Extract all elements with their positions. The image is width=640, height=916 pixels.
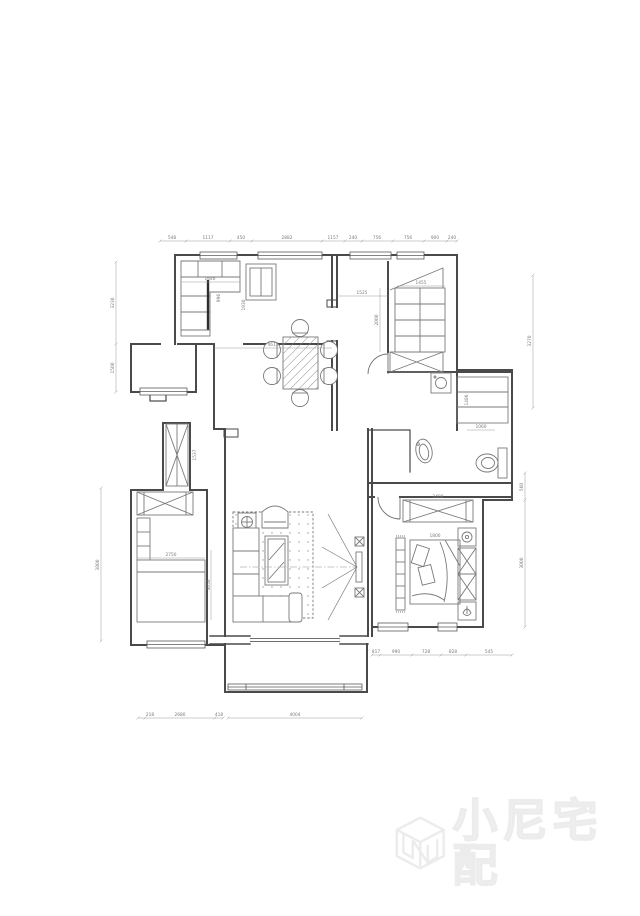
dim-label: 828 [449,649,457,655]
brand-watermark: 小尼宅配 [394,798,640,888]
dim-label: 2680 [175,712,186,718]
dim-label: 1800 [430,533,441,539]
kitchen-counter-icon [181,261,240,330]
wall-right-outer [457,255,512,627]
dim-label: 817 [372,649,380,655]
window-master-2 [438,623,457,631]
dim-label: 3000 [519,557,525,568]
window-kitchen-1 [200,252,237,259]
window-bedroom-left [147,641,205,648]
dim-label: 2400 [433,494,444,500]
rug-icon [396,536,405,612]
wardrobe-icon [137,492,193,515]
brand-watermark-text: 小尼宅配 [453,798,640,888]
floorplan-drawing: 548 1117 450 2882 1157 240 756 756 900 2… [0,0,640,916]
dim-label: 3230 [110,297,116,308]
bed-icon [410,540,460,604]
sink-icon [414,438,435,465]
wardrobe-icon [403,500,473,522]
wall-balcony-piers [210,636,368,644]
dim-label: 560 [519,483,525,491]
chair-icon [264,368,281,385]
dim-label: 2750 [166,552,177,558]
dim-label: 3270 [527,335,533,346]
bathroom-area [414,373,508,478]
dim-label: 1930 [241,299,247,310]
wall-small-room [131,344,196,392]
dim-label: 3800 [95,559,101,570]
dim-label: 2000 [374,314,380,325]
door-arc-master [378,497,400,519]
wardrobe-icon [390,352,443,372]
window-bedroom2 [397,252,424,259]
chair-icon [292,320,309,337]
cabinet-open-door [390,268,443,290]
dim-label: 240 [448,235,456,241]
kitchen-cabinet-end [181,330,210,336]
hall-closet-icon [166,424,188,486]
window-dining [350,252,391,259]
window-small-room [140,388,187,395]
dim-label: 900 [431,235,439,241]
dim-label: 1117 [203,235,214,241]
dim-label: 218 [146,712,154,718]
dim-label: 1157 [328,235,339,241]
wall-hall-notch [224,429,238,437]
dim-label: 756 [404,235,412,241]
floorplan-page: { "watermark": { "brand_text": "小尼宅配", "… [0,0,640,916]
chair-icon [292,390,309,407]
cube-n-logo-icon [394,813,447,873]
nightstand-lamp-icon [458,528,476,546]
chair-icon [321,342,338,359]
dim-label: 1537 [192,449,198,460]
wall-hall-west [214,344,225,636]
armchair-icon [262,506,288,528]
dim-label: 240 [349,235,357,241]
master-bedroom [396,500,476,620]
kitchen-area [181,261,276,336]
dim-label: 1500 [110,362,116,373]
door-arc-bedroom2 [368,354,388,374]
living-room [233,506,364,622]
balcony-door-track [250,639,340,642]
dim-label: 4611 [268,342,279,348]
dim-label: 2882 [282,235,293,241]
dim-label: 548 [168,235,176,241]
toilet-icon [476,448,507,478]
dim-label: 756 [373,235,381,241]
window-balcony [228,684,362,690]
wall-living-east [368,429,372,636]
chaise-icon [458,548,476,600]
fridge-icon [246,264,276,300]
nightstand-plant-icon [458,602,476,620]
washing-machine-icon [431,373,451,393]
dim-label: 728 [422,649,430,655]
bookcase-icon [395,288,445,352]
dim-label: 990 [392,649,400,655]
chair-icon [321,368,338,385]
dim-label: 418 [215,712,223,718]
dim-label: 1060 [476,424,487,430]
dining-table-icon [283,337,318,389]
dim-label: 1486 [464,394,470,405]
dim-label: 545 [485,649,493,655]
dim-label: 1525 [357,290,368,296]
dim-label: 4004 [290,712,301,718]
dim-label: 1646 [205,276,216,282]
dim-label: 3050 [206,579,212,590]
bed-icon [137,560,205,622]
wall-sink-counter [368,430,410,472]
coffee-table-icon [265,536,288,585]
desk-icon [137,518,150,560]
window-master-1 [378,623,408,631]
window-kitchen-2 [258,252,322,259]
dim-label: 450 [237,235,245,241]
dim-label: 996 [216,294,222,302]
dining-area [264,320,338,407]
dim-label: 1455 [416,280,427,286]
